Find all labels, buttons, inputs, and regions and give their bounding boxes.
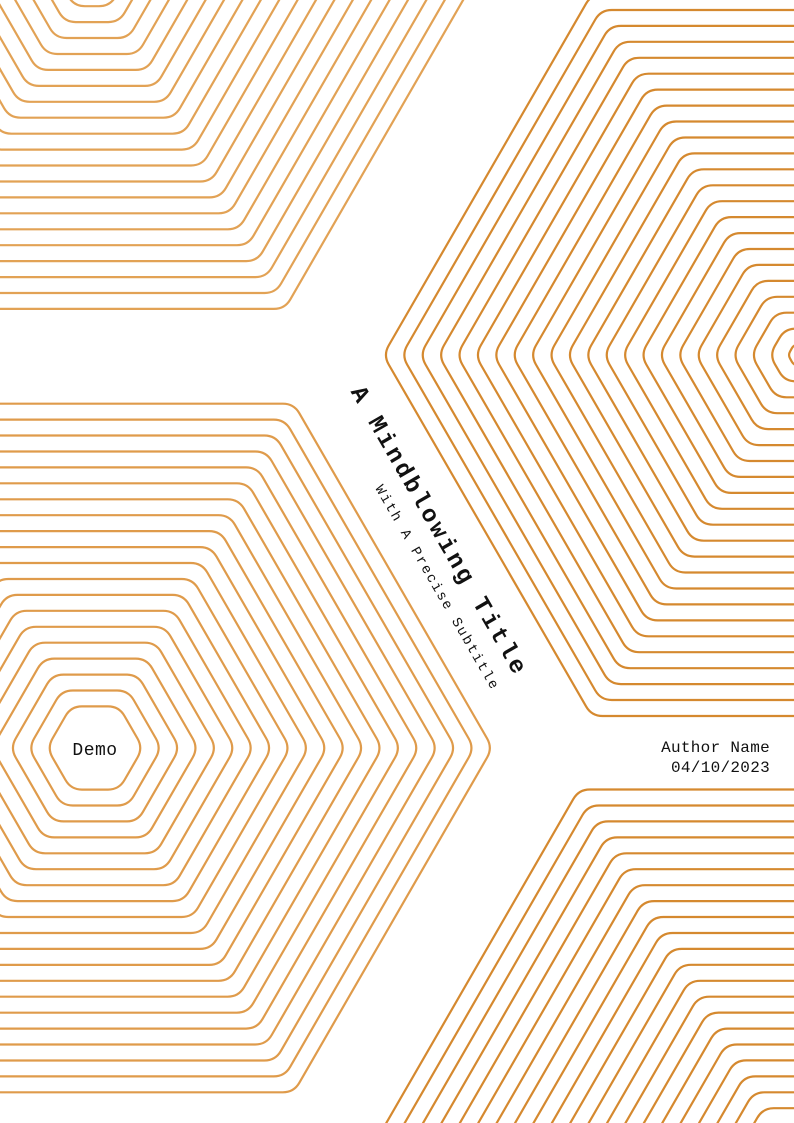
author-name: Author Name	[661, 738, 770, 758]
author-block: Author Name 04/10/2023	[661, 738, 770, 778]
demo-badge: Demo	[72, 741, 117, 761]
title-page: A Mindblowing Title With A Precise Subti…	[0, 0, 794, 1123]
hexagon-pattern-background	[0, 0, 794, 1123]
document-date: 04/10/2023	[661, 758, 770, 778]
